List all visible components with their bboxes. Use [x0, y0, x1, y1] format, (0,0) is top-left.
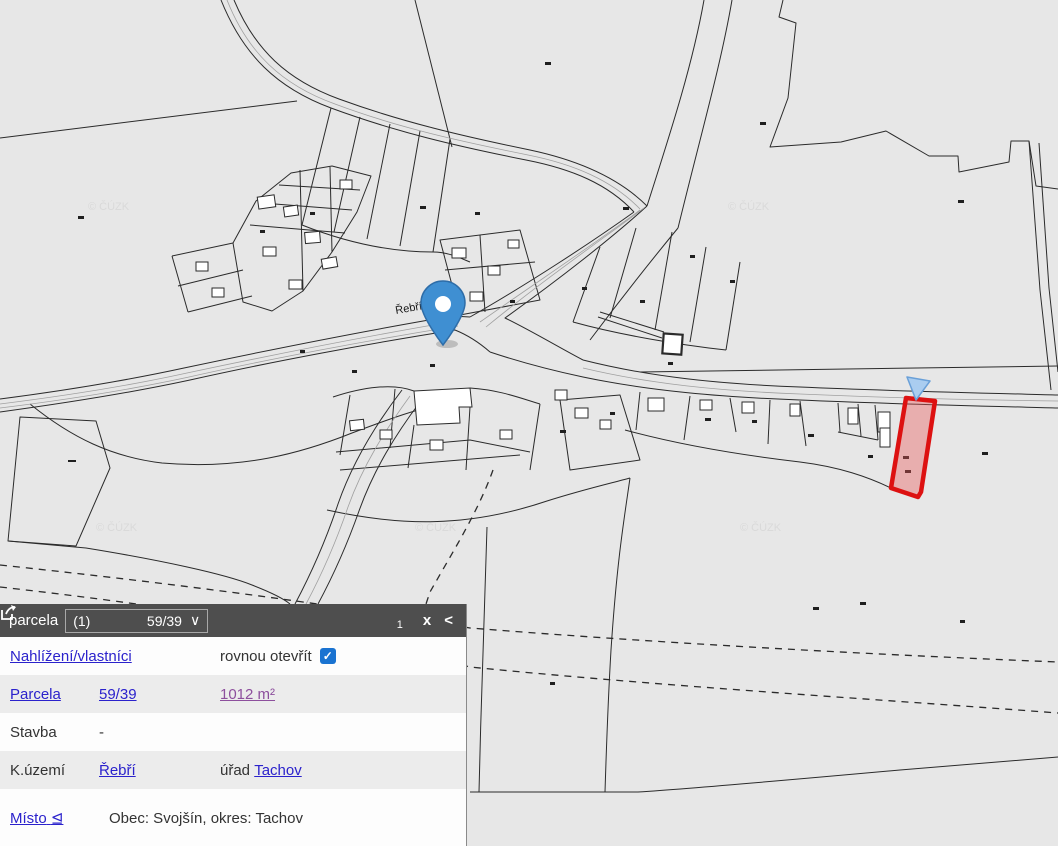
- urad-label: úřad: [220, 762, 250, 779]
- parcela-label-link[interactable]: Parcela: [10, 686, 61, 703]
- selector-value: 59/39: [106, 613, 182, 629]
- kuzemi-value-link[interactable]: Řebří: [99, 762, 136, 779]
- parcela-number-link[interactable]: 59/39: [99, 686, 137, 703]
- collapse-icon[interactable]: <: [444, 612, 453, 629]
- row-parcela: Parcela 59/39 1012 m²: [0, 675, 466, 713]
- chevron-down-icon: ∨: [190, 612, 200, 629]
- parcela-area-link[interactable]: 1012 m²: [220, 686, 275, 703]
- svg-text:© ČÚZK: © ČÚZK: [96, 521, 138, 534]
- stavba-label: Stavba: [10, 724, 99, 741]
- parcel-info-panel: parcela (1) 59/39 ∨ 1 x < Nahlížení/vlas…: [0, 604, 467, 846]
- row-kuzemi: K.území Řebří úřad Tachov: [0, 751, 466, 789]
- svg-text:© ČÚZK: © ČÚZK: [728, 200, 770, 213]
- svg-text:© ČÚZK: © ČÚZK: [415, 521, 457, 534]
- misto-toggle-icon: ⊴: [51, 810, 64, 827]
- urad-value-link[interactable]: Tachov: [254, 762, 302, 779]
- row-misto: Místo ⊴ Obec: Svojšín, okres: Tachov: [0, 789, 466, 839]
- stavba-value: -: [99, 724, 104, 741]
- nahlizeni-vlastnici-link[interactable]: Nahlížení/vlastníci: [10, 648, 132, 665]
- row-stavba: Stavba -: [0, 713, 466, 751]
- bold-building: [662, 333, 682, 354]
- misto-value: Obec: Svojšín, okres: Tachov: [109, 810, 303, 827]
- svg-text:© ČÚZK: © ČÚZK: [88, 200, 130, 213]
- rovnou-otevrit-checkbox[interactable]: ✓: [320, 648, 336, 664]
- rovnou-otevrit-label: rovnou otevřít: [220, 648, 312, 665]
- selector-index: (1): [73, 613, 90, 629]
- panel-header: parcela (1) 59/39 ∨ 1 x <: [0, 604, 466, 637]
- share-count: 1: [397, 619, 403, 631]
- row-nahlizeni: Nahlížení/vlastníci rovnou otevřít ✓: [0, 637, 466, 675]
- close-icon[interactable]: x: [423, 612, 431, 629]
- kuzemi-label: K.území: [10, 762, 99, 779]
- misto-link[interactable]: Místo ⊴: [10, 810, 63, 827]
- map-viewer: © ČÚZK © ČÚZK © ČÚZK © ČÚZK © ČÚZK: [0, 0, 1058, 846]
- parcel-selector-dropdown[interactable]: (1) 59/39 ∨: [65, 609, 208, 633]
- svg-text:© ČÚZK: © ČÚZK: [740, 521, 782, 534]
- panel-rows: Nahlížení/vlastníci rovnou otevřít ✓ Par…: [0, 637, 466, 839]
